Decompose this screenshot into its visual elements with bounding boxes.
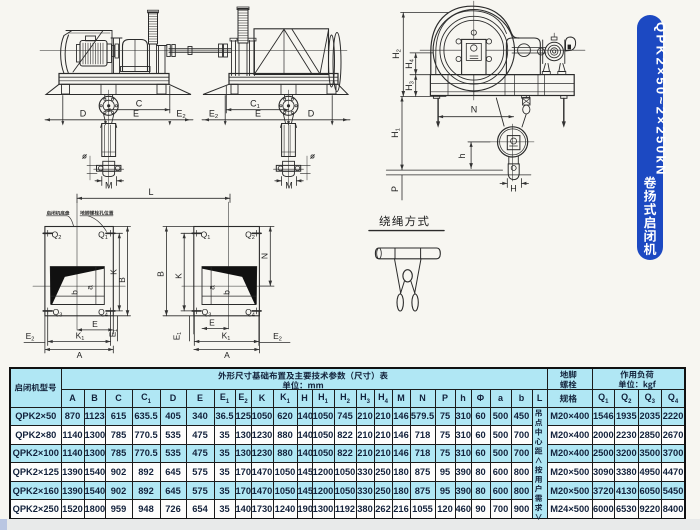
svg-text:D: D bbox=[80, 109, 87, 119]
svg-text:H: H bbox=[510, 184, 517, 194]
svg-text:K: K bbox=[173, 273, 183, 279]
svg-text:a: a bbox=[207, 285, 217, 290]
svg-text:E1: E1 bbox=[173, 332, 184, 340]
svg-text:A: A bbox=[224, 350, 230, 360]
svg-text:H4: H4 bbox=[404, 58, 416, 69]
svg-text:K1: K1 bbox=[222, 331, 231, 343]
svg-text:B: B bbox=[156, 271, 166, 277]
svg-text:Q2: Q2 bbox=[52, 230, 62, 242]
svg-text:Q4: Q4 bbox=[98, 307, 108, 319]
svg-text:Q4: Q4 bbox=[245, 307, 255, 319]
svg-text:K1: K1 bbox=[76, 331, 85, 343]
svg-text:QPK2×50~2×250kN: QPK2×50~2×250kN bbox=[654, 22, 669, 177]
svg-text:E: E bbox=[255, 109, 261, 119]
svg-text:K: K bbox=[109, 269, 119, 275]
svg-text:b: b bbox=[222, 290, 232, 295]
svg-text:M: M bbox=[285, 181, 293, 191]
svg-text:E: E bbox=[209, 318, 215, 328]
svg-text:b: b bbox=[69, 290, 79, 295]
svg-text:N: N bbox=[260, 253, 270, 259]
svg-text:D: D bbox=[308, 109, 315, 119]
svg-text:P: P bbox=[390, 186, 400, 192]
svg-text:N: N bbox=[471, 105, 478, 115]
svg-text:A: A bbox=[77, 350, 83, 360]
svg-text:C: C bbox=[136, 99, 143, 109]
svg-text:E: E bbox=[133, 109, 139, 119]
svg-text:h: h bbox=[457, 153, 467, 158]
svg-text:H3: H3 bbox=[404, 80, 416, 91]
svg-text:Q1: Q1 bbox=[201, 230, 211, 242]
svg-text:E: E bbox=[92, 319, 98, 329]
svg-text:B: B bbox=[117, 277, 127, 283]
svg-text:L: L bbox=[148, 187, 153, 197]
svg-text:M: M bbox=[105, 181, 113, 191]
svg-text:a: a bbox=[84, 285, 94, 290]
svg-text:H2: H2 bbox=[391, 49, 403, 59]
svg-text:E2: E2 bbox=[176, 109, 185, 121]
svg-text:Q3: Q3 bbox=[53, 307, 63, 319]
svg-text:H1: H1 bbox=[390, 128, 402, 138]
svg-text:E2: E2 bbox=[209, 109, 218, 121]
svg-text:Q2: Q2 bbox=[245, 230, 255, 242]
svg-text:E2: E2 bbox=[273, 331, 282, 343]
svg-text:E2: E2 bbox=[26, 331, 35, 343]
